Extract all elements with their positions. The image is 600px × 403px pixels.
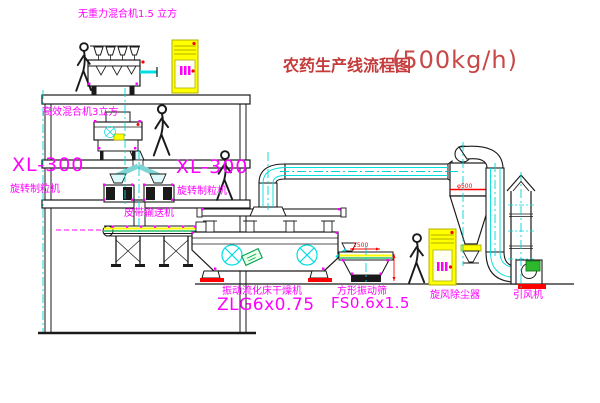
label-granulator-left-name: 旋转制粒机 [10, 185, 60, 196]
granulator-left-drawing [104, 174, 134, 202]
label-high-efficiency-mixer: 高效混合机3立方 [42, 108, 118, 119]
granulator-right-drawing [144, 174, 174, 202]
label-granulator-left-model: XL-300 [12, 156, 84, 176]
fluid-bed-dryer-drawing [192, 207, 356, 282]
person-figure-level2 [154, 105, 170, 155]
gravity-mixer-drawing [88, 46, 157, 95]
person-figure-ground [409, 234, 424, 283]
label-square-sieve-model: FS0.6x1.5 [331, 296, 410, 312]
belt-conveyor-drawing [56, 226, 200, 267]
label-granulator-right-name: 旋转制粒机 [177, 187, 227, 198]
cyclone-diameter-text: φ500 [457, 183, 473, 190]
label-cyclone-dust-collector: 旋风除尘器 [430, 291, 480, 302]
label-gravity-mixer: 无重力混合机1.5 立方 [78, 10, 177, 21]
high-efficiency-mixer-drawing [94, 112, 144, 160]
control-cabinet-top [172, 40, 198, 93]
sieve-width-text: 1500 [353, 242, 368, 249]
diagram-capacity: (500kg/h) [392, 46, 518, 74]
label-fluid-bed-dryer-model: ZLG6x0.75 [217, 297, 315, 315]
label-belt-conveyor: 皮带输送机 [124, 209, 174, 220]
control-cabinet-right [429, 229, 456, 285]
label-induced-draft-fan: 引风机 [513, 291, 543, 302]
diagram-canvas: φ500 1500 农药生产线流程图 (500kg/h) 无重力混合机1.5 立… [0, 0, 600, 403]
induced-draft-fan-drawing [516, 260, 546, 289]
label-granulator-right-model: XL-300 [176, 158, 248, 178]
exhaust-duct-drawing [259, 161, 452, 207]
